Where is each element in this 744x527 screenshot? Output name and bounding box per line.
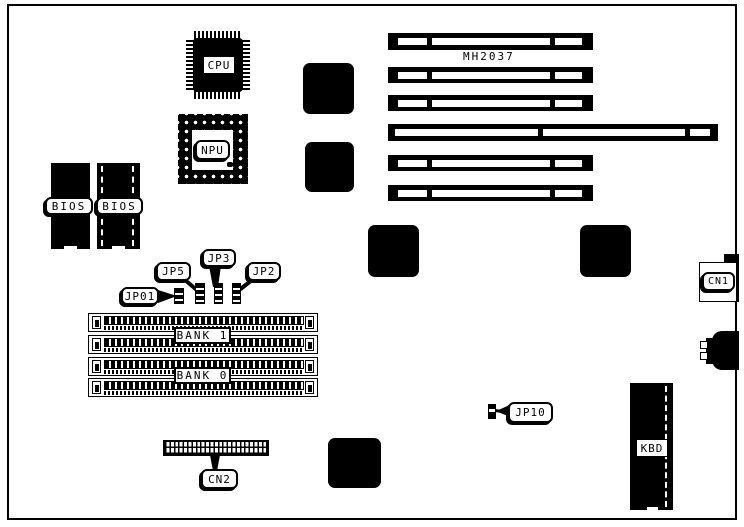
kbd-label-text: KBD — [641, 443, 664, 454]
cpu-pins-right — [242, 40, 250, 90]
motherboard-diagram: CPU NPU BIOS BIOS JP01 JP5 JP3 JP2 — [0, 0, 744, 527]
expansion-slot-3 — [388, 95, 593, 111]
jp01-label: JP01 — [121, 287, 159, 305]
bios-left-label-text: BIOS — [52, 201, 87, 212]
cn2-header — [163, 440, 269, 456]
npu-label: NPU — [195, 140, 230, 160]
jumper-jp5-block — [195, 283, 205, 304]
kbd-label: KBD — [636, 439, 668, 457]
bios-right-label: BIOS — [96, 197, 143, 215]
jp5-label-text: JP5 — [162, 266, 185, 277]
cn2-label-text: CN2 — [208, 474, 231, 485]
jp3-label-text: JP3 — [208, 253, 231, 264]
jumper-jp10-block — [488, 404, 496, 419]
jumper-jp2-block — [232, 283, 241, 304]
bios-right-label-text: BIOS — [102, 201, 137, 212]
bios-chip-right-notch — [112, 246, 125, 249]
npu-pin1-dot — [227, 162, 233, 167]
bios-left-label: BIOS — [45, 197, 93, 215]
bank0-label: BANK 0 — [174, 367, 231, 384]
cpu-label: CPU — [203, 56, 235, 74]
bank0-label-text: BANK 0 — [177, 370, 229, 381]
ic-chip-1 — [303, 63, 354, 114]
jp10-label: JP10 — [508, 402, 553, 423]
jumper-jp01-block — [174, 288, 184, 304]
jumper-jp3-block — [214, 283, 223, 304]
jp3-label: JP3 — [202, 249, 236, 267]
expansion-slot-1 — [388, 33, 593, 50]
cn2-label: CN2 — [201, 469, 238, 489]
expansion-slot-2 — [388, 67, 593, 83]
jp5-label: JP5 — [156, 262, 191, 281]
ic-chip-5 — [328, 438, 381, 488]
bank1-label-text: BANK 1 — [177, 330, 229, 341]
bios-chip-left-notch — [64, 246, 77, 249]
cpu-label-text: CPU — [208, 60, 231, 71]
expansion-slot-5 — [388, 155, 593, 171]
cpu-pins-bottom — [194, 91, 242, 99]
board-model-text: MH2037 — [463, 51, 515, 62]
expansion-slot-6 — [388, 185, 593, 201]
cn1-label-text: CN1 — [708, 277, 729, 287]
ic-chip-3 — [368, 225, 419, 277]
npu-label-text: NPU — [201, 145, 224, 156]
edge-connector-pin-2 — [700, 352, 708, 360]
jp10-label-text: JP10 — [515, 407, 546, 418]
jp2-label: JP2 — [247, 262, 281, 281]
cn1-label: CN1 — [702, 272, 735, 291]
jp2-label-text: JP2 — [253, 266, 276, 277]
expansion-slot-4-long — [388, 124, 718, 141]
ic-chip-2 — [305, 142, 354, 192]
edge-connector-pin-1 — [700, 341, 708, 349]
jp01-label-text: JP01 — [125, 291, 156, 302]
ic-chip-4 — [580, 225, 631, 277]
kbd-connector-notch — [647, 507, 658, 510]
bank1-label: BANK 1 — [174, 327, 231, 344]
